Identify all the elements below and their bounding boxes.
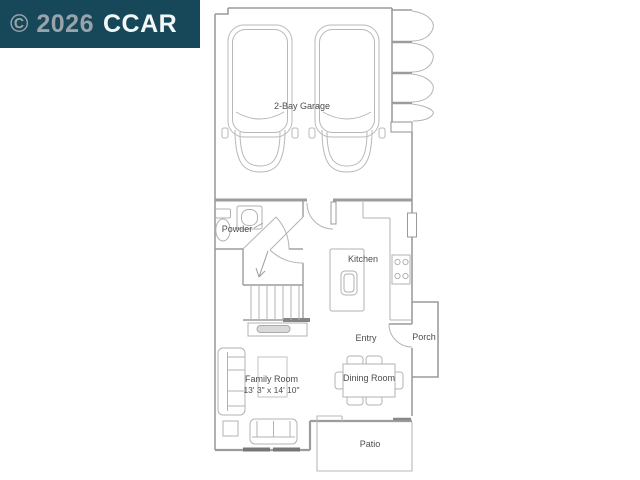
loveseat-icon bbox=[250, 419, 297, 444]
powder-label: Powder bbox=[214, 225, 260, 235]
family-room-dimensions: 13' 3" x 14' 10" bbox=[224, 386, 319, 395]
kitchen-label: Kitchen bbox=[338, 255, 388, 265]
dining-room-label: Dining Room bbox=[332, 374, 406, 384]
porch-label: Porch bbox=[402, 333, 446, 343]
garage-label: 2-Bay Garage bbox=[250, 102, 354, 112]
garage-entry-door bbox=[307, 202, 336, 229]
wall-stub bbox=[283, 318, 310, 322]
floor-plan-page: © 2026 CCAR bbox=[0, 0, 640, 480]
door-swing-icon bbox=[412, 11, 433, 121]
car-icon bbox=[309, 25, 385, 172]
window bbox=[273, 448, 300, 452]
family-room-label: Family Room bbox=[229, 375, 314, 385]
patio-label: Patio bbox=[347, 440, 393, 450]
sink-icon bbox=[341, 271, 357, 295]
entry-label: Entry bbox=[344, 334, 388, 344]
powder-door-swings bbox=[243, 217, 303, 263]
stove-icon bbox=[392, 255, 410, 284]
window bbox=[408, 213, 417, 237]
floor-plan-svg bbox=[0, 0, 640, 480]
car-icon bbox=[222, 25, 298, 172]
window bbox=[243, 448, 270, 452]
tv-console-icon bbox=[248, 323, 307, 336]
side-table-icon bbox=[223, 421, 238, 436]
